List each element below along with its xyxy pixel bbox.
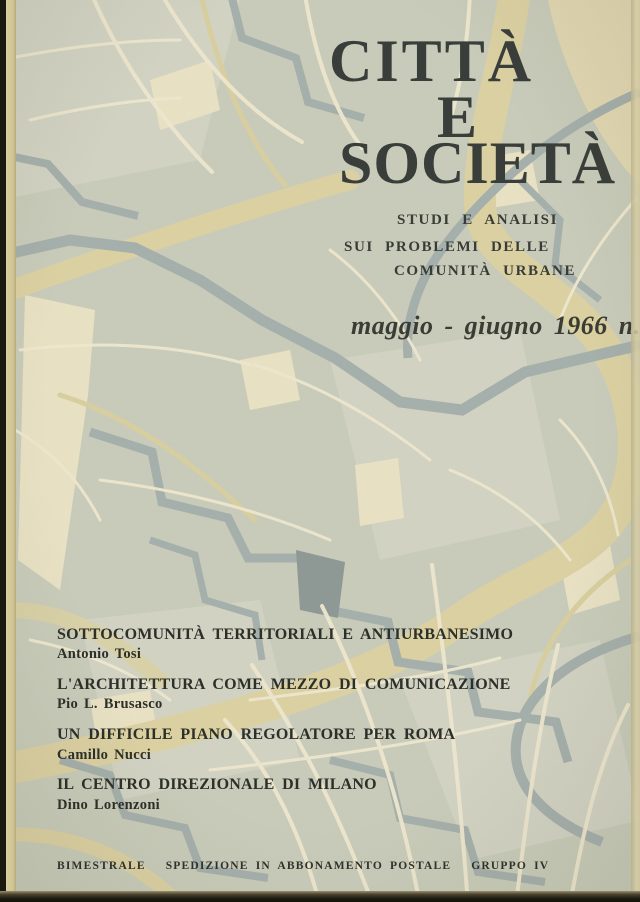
cover-title-line1: CITTÀ	[329, 31, 534, 91]
article-item: IL CENTRO DIREZIONALE DI MILANO Dino Lor…	[57, 776, 527, 813]
magazine-cover: CITTÀ E SOCIETÀ STUDI E ANALISI SUI PROB…	[0, 0, 640, 902]
article-author: Antonio Tosi	[57, 646, 527, 663]
article-item: SOTTOCOMUNITÀ TERRITORIALI E ANTIURBANES…	[57, 626, 527, 663]
page-edge-left	[6, 0, 16, 902]
article-title: L'ARCHITETTURA COME MEZZO DI COMUNICAZIO…	[57, 676, 527, 694]
subtitle-line1: STUDI E ANALISI	[397, 213, 558, 228]
footer-imprint: BIMESTRALESPEDIZIONE IN ABBONAMENTO POST…	[57, 860, 569, 872]
scan-shadow-bottom	[0, 891, 640, 902]
article-title: UN DIFFICILE PIANO REGOLATORE PER ROMA	[57, 726, 527, 744]
subtitle-line3: COMUNITÀ URBANE	[394, 264, 576, 279]
article-author: Pio L. Brusasco	[57, 696, 527, 713]
article-list: SOTTOCOMUNITÀ TERRITORIALI E ANTIURBANES…	[57, 626, 527, 826]
article-title: IL CENTRO DIREZIONALE DI MILANO	[57, 776, 527, 794]
article-item: L'ARCHITETTURA COME MEZZO DI COMUNICAZIO…	[57, 676, 527, 713]
issue-date: maggio - giugno 1966 n. 3	[351, 310, 640, 341]
footer-text: GRUPPO IV	[471, 860, 549, 872]
subtitle-line2: SUI PROBLEMI DELLE	[344, 240, 550, 255]
article-author: Camillo Nucci	[57, 747, 527, 764]
article-title: SOTTOCOMUNITÀ TERRITORIALI E ANTIURBANES…	[57, 626, 527, 644]
page-edge-right	[631, 0, 640, 902]
cover-title-line3: SOCIETÀ	[339, 133, 616, 193]
footer-text: BIMESTRALE	[57, 860, 146, 872]
article-author: Dino Lorenzoni	[57, 797, 527, 814]
article-item: UN DIFFICILE PIANO REGOLATORE PER ROMA C…	[57, 726, 527, 763]
footer-text: SPEDIZIONE IN ABBONAMENTO POSTALE	[166, 860, 452, 872]
